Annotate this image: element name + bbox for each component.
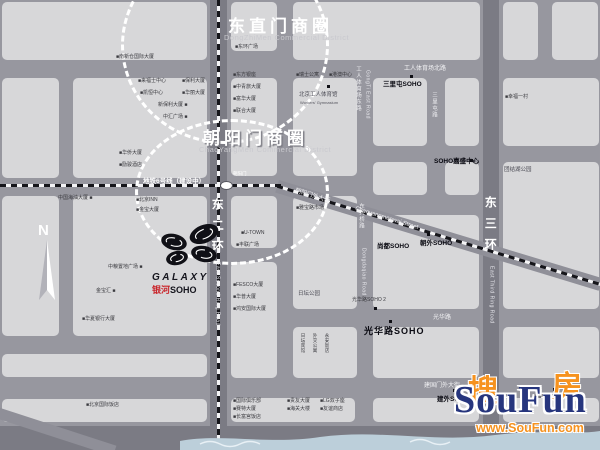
map-label: ■凯恒中心 [140, 91, 163, 97]
map-label: 团结湖公园 [504, 167, 532, 173]
map-label: ■瑞士公寓 [296, 73, 319, 79]
map-label: 三里屯SOHO [383, 81, 422, 88]
map-label: ■国际俱乐部 [233, 399, 261, 405]
map-label: ■励骏酒店 [119, 163, 142, 169]
building-marker [427, 233, 430, 236]
map-label: 东三环 [483, 196, 496, 259]
map-label: ■赛特大厦 [233, 407, 256, 413]
map-label: ■丰联广场 [236, 243, 259, 249]
map-label: ■来福士中心 [138, 79, 166, 85]
map-block [373, 78, 427, 146]
map-label: 中汇广场 ■ [163, 115, 187, 121]
map-label: 永安饭店 [324, 333, 329, 353]
map-block [552, 2, 598, 60]
map-label: Workers' Gymnasium [300, 101, 338, 105]
map-label: ■友谊商店 [320, 407, 343, 413]
map-block [503, 2, 538, 60]
map-label: ■金宝大厦 [136, 208, 159, 214]
map-label: ■港澳中心 [329, 73, 352, 79]
galaxy-soho-logo: GALAXY 银河SOHO [152, 222, 236, 292]
map-label: Dongdaqiao Road [360, 248, 366, 296]
building-marker [410, 75, 413, 78]
map-block [231, 262, 277, 378]
soufun-logo-text: SouFun [454, 378, 587, 422]
map-label: 外交公寓 [312, 333, 317, 353]
map-label: 东大桥路 [358, 203, 364, 229]
soufun-watermark: 搜 房 SouFun www.SouFun.com [452, 362, 600, 448]
map-block [445, 78, 479, 146]
map-label: East Third Ring Road [488, 266, 494, 324]
map-block [373, 162, 427, 195]
galaxy-logo-text: GALAXY [152, 272, 236, 283]
location-map: 东直门商圈DongZhiMen Commercial District朝阳门商圈… [0, 0, 600, 450]
map-label: ■贵友大厦 [287, 399, 310, 405]
map-label: 日坛宾馆 [300, 333, 305, 353]
map-label: ■华普大厦 [233, 295, 256, 301]
building-marker [389, 320, 392, 323]
map-label: ■U-TOWN [241, 231, 264, 237]
map-label: ■华丽大厦 [182, 91, 205, 97]
map-block [503, 78, 599, 146]
district-subtitle: ChaoYangMen Commercial District [199, 145, 331, 154]
map-label: ■FESCO大厦 [233, 283, 263, 289]
district-subtitle: DongZhiMen Commercial District [224, 33, 349, 42]
map-label: 尚都SOHO [377, 243, 409, 250]
map-label: ■华侨大厦 [119, 151, 142, 157]
map-label: 日坛公园 [298, 291, 320, 297]
map-label: ■南新仓国际大厦 [116, 55, 154, 61]
map-label: ■长富宫饭店 [233, 415, 261, 421]
map-label: ■华夏银行大厦 [82, 317, 115, 323]
building-marker [327, 85, 330, 88]
map-label: ■中青旅大厦 [233, 85, 261, 91]
map-label: 光华路SOHO 2 [352, 298, 386, 304]
map-label: 工人体育场北路 [404, 66, 446, 73]
map-label: ■保利大厦 [182, 79, 205, 85]
map-label: ■雅宝路市场 [296, 206, 324, 212]
map-label: ■东环广场 [235, 45, 258, 51]
map-block [445, 162, 479, 195]
map-block [2, 354, 207, 377]
map-block [503, 162, 599, 309]
building-marker [374, 307, 377, 310]
map-label: 朝阳门 [233, 172, 247, 177]
galaxy-soho-blobs-icon [152, 222, 232, 266]
map-label: 北京工人体育馆 [299, 92, 338, 98]
map-block [2, 78, 59, 178]
map-label: ■海关大楼 [287, 407, 310, 413]
map-label: ■北京国际饭店 [86, 403, 119, 409]
map-label: 工人体育场东路 [355, 66, 361, 112]
building-marker [470, 159, 473, 162]
soufun-url-text: www.SouFun.com [476, 421, 584, 435]
map-label: 中粮置地广场 ■ [108, 265, 142, 271]
map-label: GongTi East Road [364, 70, 370, 119]
compass-north-label: N [38, 222, 49, 239]
map-label: ■鸿安国际大厦 [233, 307, 266, 313]
map-label: ■幸福一村 [505, 95, 528, 101]
map-label: ■联合大厦 [233, 109, 256, 115]
map-label: ■富华大厦 [233, 97, 256, 103]
map-label: 光华路 [433, 315, 451, 322]
galaxy-logo-cn-text: 银河SOHO [152, 283, 236, 296]
map-label: ■东方银座 [233, 73, 256, 79]
map-label: 地铁6号线（建设中） [143, 178, 205, 185]
map-label: ■LG双子座 [320, 399, 345, 405]
map-label: 三里屯路 [431, 92, 437, 118]
compass-arrow-icon [34, 238, 64, 304]
map-label: 朝外SOHO [420, 240, 452, 247]
map-label: 中国海油大厦 ■ [58, 196, 92, 202]
map-label: 金宝汇 ■ [96, 289, 115, 295]
map-label: ■北京INN [136, 198, 158, 204]
map-label: 新保利大厦 ■ [158, 103, 187, 109]
compass: N [34, 222, 64, 306]
map-label: 光华路SOHO [364, 327, 425, 337]
